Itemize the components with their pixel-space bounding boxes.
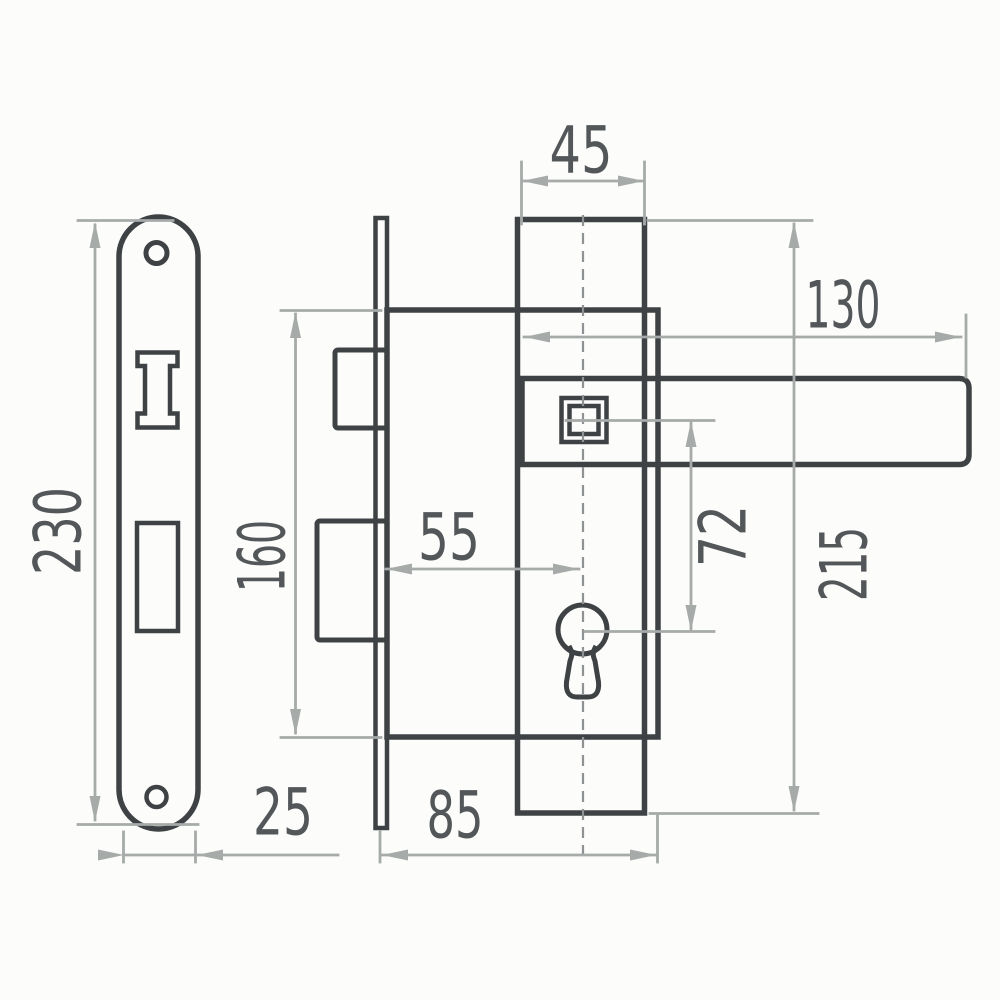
arrowhead xyxy=(935,332,961,343)
arrowhead xyxy=(90,796,101,822)
dim-label-strike-plate-width: 25 xyxy=(253,776,313,851)
arrowhead xyxy=(686,421,697,447)
dim-label-strike-plate-height: 230 xyxy=(22,487,97,575)
strike-plate-deadbolt-cutout xyxy=(137,523,178,631)
arrowhead xyxy=(290,312,301,338)
dim-label-backset: 55 xyxy=(418,501,480,576)
arrowhead xyxy=(90,222,101,248)
dim-label-lock-body-width: 85 xyxy=(427,779,484,854)
dimension-graphics xyxy=(78,162,966,862)
arrowhead xyxy=(522,176,548,187)
dim-label-escutcheon-width: 45 xyxy=(550,114,613,189)
dim-label-lock-body-height: 160 xyxy=(226,520,301,592)
arrowhead xyxy=(524,332,550,343)
dim-label-handle-length: 130 xyxy=(806,269,881,344)
arrowhead xyxy=(553,564,579,575)
arrowhead xyxy=(290,709,301,735)
strike-plate-top-screw-hole xyxy=(146,243,167,264)
strike-plate-latch-cutout xyxy=(138,353,178,428)
dimension-labels: 45 130 230 160 55 72 215 25 85 xyxy=(22,114,883,854)
dim-label-spindle-to-cylinder: 72 xyxy=(687,505,762,567)
dim-label-escutcheon-height: 215 xyxy=(808,527,883,601)
arrowhead xyxy=(789,786,800,812)
arrowhead xyxy=(686,605,697,631)
lock-dimension-drawing: 45 130 230 160 55 72 215 25 85 xyxy=(0,0,1000,1000)
arrowhead xyxy=(630,850,656,861)
arrowhead xyxy=(789,222,800,248)
arrowhead xyxy=(98,850,124,861)
arrowhead xyxy=(382,850,408,861)
arrowhead xyxy=(618,176,644,187)
latch-bolt xyxy=(335,350,387,428)
strike-plate-bottom-screw-hole xyxy=(147,787,167,807)
arrowhead xyxy=(386,564,412,575)
arrowhead xyxy=(197,850,223,861)
